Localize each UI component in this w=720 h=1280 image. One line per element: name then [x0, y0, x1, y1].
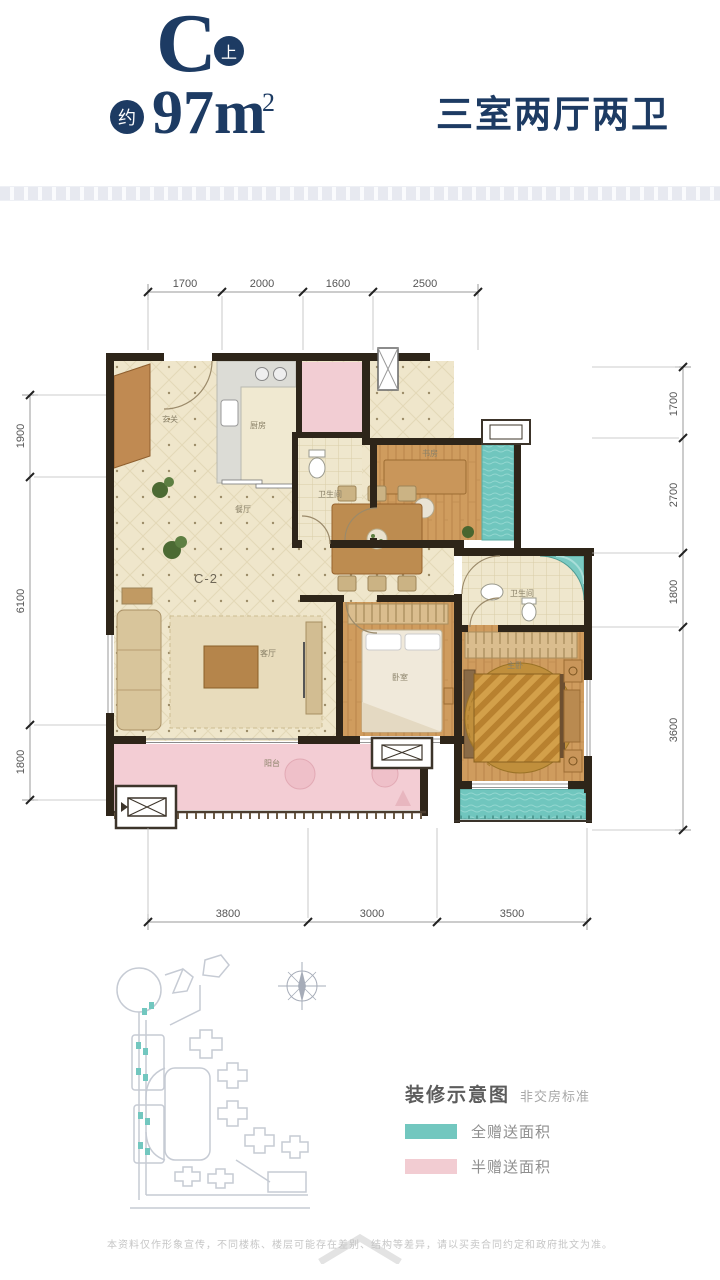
half-gift-label: 半赠送面积: [471, 1156, 551, 1177]
decorative-band: [0, 186, 720, 201]
building-cross: [190, 1030, 222, 1058]
legend-item-full-gift: 全赠送面积: [405, 1121, 665, 1142]
legend-subtitle: 非交房标准: [520, 1086, 590, 1105]
dim-right-4: 3600: [668, 718, 680, 742]
room-label-entry: 玄关: [162, 414, 178, 424]
dim-left-3: 1800: [15, 750, 27, 774]
legend-item-half-gift: 半赠送面积: [405, 1156, 665, 1177]
approx-badge: 约: [110, 100, 144, 134]
dim-left-2: 6100: [15, 589, 27, 613]
layout-description: 三室两厅两卫: [436, 84, 670, 138]
dim-right-1: 1700: [668, 392, 680, 416]
dim-bottom-3: 3500: [500, 908, 524, 920]
dim-top-2: 2000: [250, 278, 274, 290]
unit-direction-badge: 上: [214, 36, 244, 66]
room-label-living: 客厅: [260, 648, 276, 658]
site-plan: [40, 950, 370, 1230]
legend: 装修示意图 非交房标准 全赠送面积 半赠送面积: [405, 1080, 665, 1177]
dim-right-2: 2700: [668, 483, 680, 507]
room-label-bathroom: 卫生间: [318, 489, 342, 499]
dim-right-3: 1800: [668, 580, 680, 604]
room-label-balcony: 阳台: [264, 758, 280, 768]
dim-left-1: 1900: [15, 424, 27, 448]
dim-top-3: 1600: [326, 278, 350, 290]
room-label-master-bedroom: 主卧: [507, 660, 523, 670]
unit-letter: C: [156, 0, 217, 88]
dim-bottom-2: 3000: [360, 908, 384, 920]
room-label-kitchen: 厨房: [250, 420, 266, 430]
room-label-study: 书房: [422, 448, 438, 458]
floor-plan: 1700 2000 1600 2500 1900 6100 1800 1700 …: [0, 250, 720, 950]
half-gift-swatch: [405, 1159, 457, 1174]
dim-top-1: 1700: [173, 278, 197, 290]
disclaimer-text: 本资料仅作形象宣传，不同楼栋、楼层可能存在差别、结构等差异，请以买卖合同约定和政…: [0, 1236, 720, 1251]
room-label-master-bathroom: 卫生间: [510, 588, 534, 598]
room-label-bedroom: 卧室: [392, 672, 408, 682]
compass-icon: [278, 962, 326, 1010]
full-gift-swatch: [405, 1124, 457, 1139]
dim-top-4: 2500: [413, 278, 437, 290]
room-label-dining: 餐厅: [235, 505, 251, 514]
unit-plan-label: C-2: [194, 571, 218, 586]
roundabout: [117, 968, 161, 1012]
legend-title: 装修示意图: [405, 1080, 510, 1107]
full-gift-label: 全赠送面积: [471, 1121, 551, 1142]
area-value: 97m: [152, 78, 266, 149]
dim-bottom-1: 3800: [216, 908, 240, 920]
area-superscript: 2: [262, 88, 275, 118]
